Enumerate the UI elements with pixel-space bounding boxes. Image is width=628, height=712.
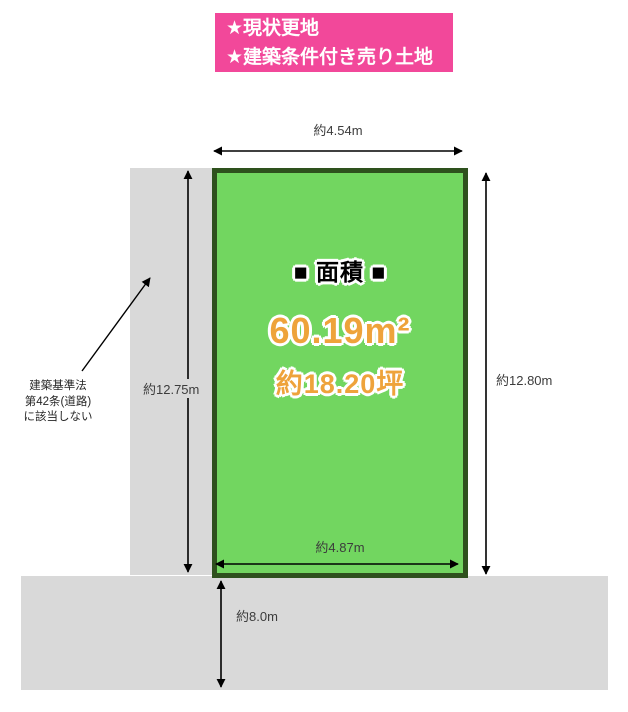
area-square-meters: 60.19m²	[217, 310, 463, 352]
dim-label-left-height: 約12.75m	[140, 379, 202, 398]
legal-note-line-1: 建築基準法	[12, 379, 104, 395]
dim-label-bottom-width: 約4.87m	[315, 537, 364, 556]
area-tsubo: 約18.20坪	[217, 362, 463, 401]
land-plot-diagram: ★現状更地 ★建築条件付き売り土地 ■ 面積 ■ 60.19m² 約18.20坪…	[0, 0, 628, 712]
banner-line-kenchiku: ★建築条件付き売り土地	[226, 43, 453, 72]
banner-line-genjo: ★現状更地	[226, 14, 453, 43]
dim-label-top-width: 約4.54m	[313, 120, 362, 139]
area-heading: ■ 面積 ■	[217, 253, 463, 287]
bottom-road-area	[21, 576, 608, 690]
sale-status-banner: ★現状更地 ★建築条件付き売り土地	[215, 13, 453, 72]
legal-note: 建築基準法 第42条(道路) に該当しない	[12, 379, 104, 426]
land-parcel: ■ 面積 ■ 60.19m² 約18.20坪	[212, 168, 468, 578]
legal-note-line-2: 第42条(道路)	[12, 395, 104, 411]
dim-label-right-height: 約12.80m	[496, 370, 552, 389]
legal-note-line-3: に該当しない	[12, 410, 104, 426]
left-gray-strip	[130, 168, 212, 575]
dim-label-road-width: 約8.0m	[236, 606, 278, 625]
